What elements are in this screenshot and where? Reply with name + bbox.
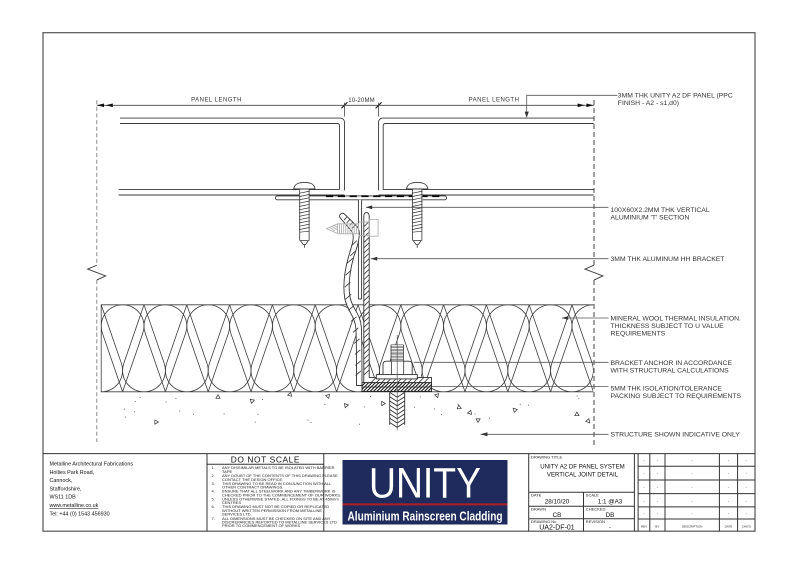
svg-text:PACKING SUBJECT TO REQUIREMENT: PACKING SUBJECT TO REQUIREMENTS [611, 393, 742, 400]
svg-text:ALUMINIUM 'T' SECTION: ALUMINIUM 'T' SECTION [611, 214, 690, 221]
svg-text:6.: 6. [212, 504, 215, 509]
svg-text:BRACKET ANCHOR IN ACCORDANCE: BRACKET ANCHOR IN ACCORDANCE [611, 360, 733, 367]
svg-text:ANY DISSIMILAR METALS TO BE IS: ANY DISSIMILAR METALS TO BE ISOLATED WIT… [222, 465, 335, 470]
svg-text:REV: REV [641, 524, 647, 528]
svg-text:5.: 5. [212, 496, 215, 501]
svg-text:DO NOT SCALE: DO NOT SCALE [231, 455, 300, 465]
svg-text:CHK'D: CHK'D [742, 524, 752, 528]
svg-text:PANEL LENGTH: PANEL LENGTH [469, 98, 520, 104]
svg-text:DB: DB [606, 512, 615, 519]
svg-text:DRAWN: DRAWN [531, 506, 546, 511]
svg-text:Metalline Architectural Fabric: Metalline Architectural Fabrications [50, 462, 134, 468]
svg-text:UNITY A2 DF PANEL SYSTEM: UNITY A2 DF PANEL SYSTEM [540, 464, 625, 471]
svg-text:STRUCTURE SHOWN INDICATIVE ONL: STRUCTURE SHOWN INDICATIVE ONLY [611, 432, 741, 439]
svg-text:UA2-DF-01: UA2-DF-01 [539, 525, 575, 532]
svg-text:100X60X2.2MM THK VERTICAL: 100X60X2.2MM THK VERTICAL [611, 207, 710, 214]
svg-text:PANEL LENGTH: PANEL LENGTH [191, 98, 242, 104]
svg-text:www.metalline.co.uk: www.metalline.co.uk [49, 503, 99, 509]
svg-text:DATE: DATE [725, 524, 733, 528]
svg-text:DRAWING TITLE: DRAWING TITLE [531, 454, 562, 459]
svg-text:VERTICAL JOINT DETAIL: VERTICAL JOINT DETAIL [547, 472, 619, 479]
svg-text:28/10/20: 28/10/20 [545, 498, 570, 505]
svg-text:3MM THK ALUMINUM HH BRACKET: 3MM THK ALUMINUM HH BRACKET [611, 256, 725, 263]
svg-text:Cannock,: Cannock, [50, 478, 73, 484]
svg-text:WS11 1DB: WS11 1DB [50, 495, 77, 501]
svg-text:THICKNESS SUBJECT TO U VALUE: THICKNESS SUBJECT TO U VALUE [611, 323, 725, 330]
svg-text:DATE: DATE [531, 493, 542, 498]
svg-text:WITH STRUCTURAL CALCULATIONS: WITH STRUCTURAL CALCULATIONS [611, 367, 730, 374]
svg-text:REVISION: REVISION [586, 519, 605, 524]
svg-text:SCALE: SCALE [586, 493, 599, 498]
svg-text:Hollies Park Road,: Hollies Park Road, [50, 470, 95, 476]
svg-text:3.: 3. [212, 481, 215, 486]
svg-text:MINERAL WOOL THERMAL INSULATIO: MINERAL WOOL THERMAL INSULATION. [611, 315, 742, 322]
svg-text:PRIOR TO COMMENCEMENT OF WORKS: PRIOR TO COMMENCEMENT OF WORKS [222, 523, 301, 528]
svg-text:REQUIREMENTS: REQUIREMENTS [611, 330, 666, 337]
svg-text:10-20MM: 10-20MM [348, 98, 375, 104]
svg-text:3MM THK UNITY A2 DF PANEL (PPC: 3MM THK UNITY A2 DF PANEL (PPC [618, 93, 733, 100]
svg-text:DESCRIPTION: DESCRIPTION [682, 524, 703, 528]
svg-text:5MM THK ISOLATION/TOLERANCE: 5MM THK ISOLATION/TOLERANCE [611, 386, 723, 393]
svg-text:1.: 1. [212, 465, 215, 470]
svg-text:CB: CB [553, 512, 562, 519]
svg-text:CHECKED: CHECKED [586, 506, 606, 511]
svg-text:Staffordshire,: Staffordshire, [50, 486, 82, 492]
svg-text:7.: 7. [212, 516, 215, 521]
svg-text:4.: 4. [212, 489, 215, 494]
svg-text:FINISH - A2 - s1,d0): FINISH - A2 - s1,d0) [618, 100, 679, 107]
svg-text:1:1 @A3: 1:1 @A3 [598, 498, 623, 505]
svg-text:Tel: +44 (0) 1543 456930: Tel: +44 (0) 1543 456930 [50, 511, 110, 517]
svg-text:UNITY: UNITY [369, 461, 481, 508]
svg-text:Aluminium Rainscreen Cladding: Aluminium Rainscreen Cladding [348, 510, 503, 524]
svg-text:2.: 2. [212, 473, 215, 478]
svg-text:BY: BY [655, 524, 659, 528]
svg-text:DRAWING No: DRAWING No [531, 519, 557, 524]
svg-text:-: - [609, 525, 611, 532]
